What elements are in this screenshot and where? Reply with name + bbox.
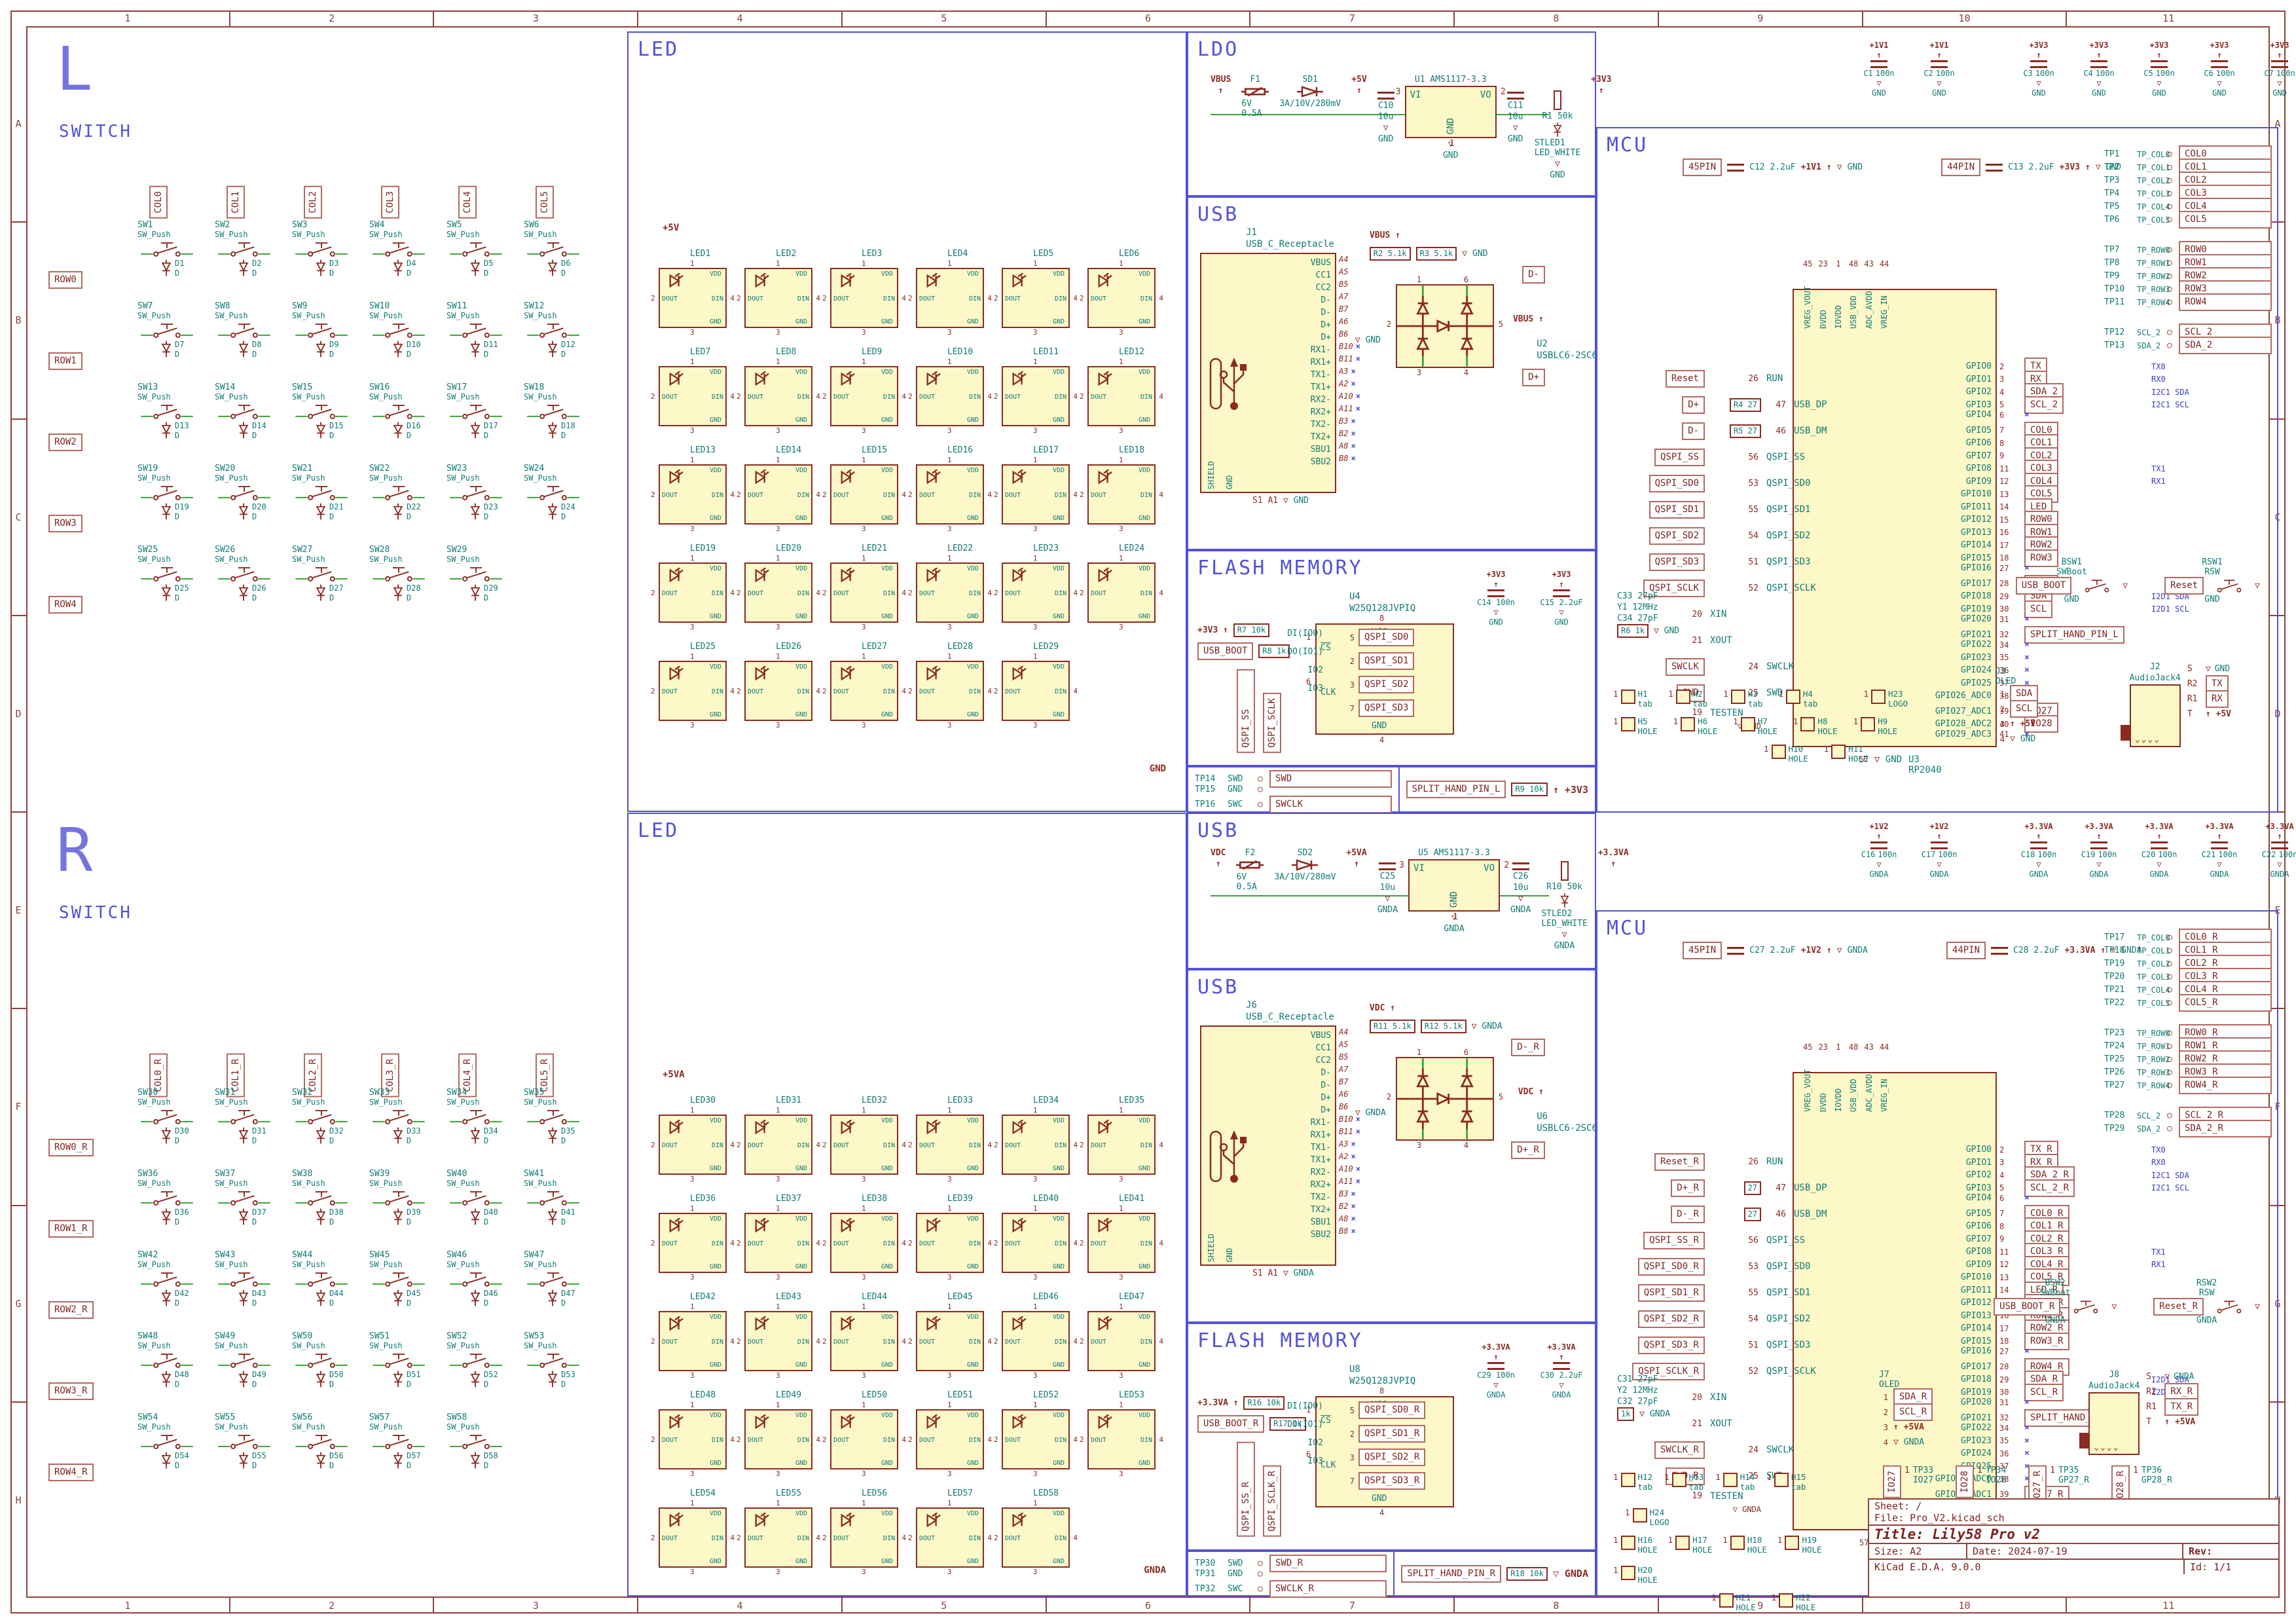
- diode-value: D: [561, 1299, 566, 1308]
- switch-icon: [524, 1190, 583, 1207]
- net-label: +3V3: [1552, 570, 1571, 579]
- pad-icon: [1800, 717, 1815, 731]
- diode-icon: [161, 583, 172, 602]
- capacitor-icon: [1931, 60, 1948, 68]
- rgb-led-icon: [1008, 1414, 1029, 1430]
- no-connect-icon: ×: [1356, 404, 1360, 413]
- mounting-hole: 1H1tab: [1613, 689, 1652, 709]
- diode-icon: [161, 421, 172, 439]
- led-cell: LED7 1 2 3 4 VDD DOUT DIN GND: [659, 347, 744, 445]
- pin-number: A1: [1267, 496, 1278, 506]
- regulator-body: 321 VIGNDVO: [1408, 859, 1500, 912]
- pin-number: 3: [690, 426, 695, 435]
- pin-number: 1: [1119, 456, 1123, 464]
- schottky-icon: [1296, 86, 1324, 98]
- pin-name: DIN: [797, 295, 809, 303]
- row-net-labels: ROW0_RROW1_RROW2_RROW3_RROW4_R: [48, 1139, 94, 1545]
- led-ref: LED52: [1033, 1390, 1087, 1400]
- mcu-pin-right: GPIO6 8 COL1: [1899, 434, 2222, 447]
- switch-ref: SW16: [369, 382, 446, 392]
- switch-icon: [446, 1109, 505, 1126]
- diode-ref: D23: [484, 502, 498, 511]
- diode-icon: [238, 340, 249, 358]
- led-ref: LED17: [1033, 445, 1087, 455]
- pin-name: DIN: [712, 688, 723, 695]
- mounting-hole: 1H9HOLE: [1853, 716, 1898, 736]
- pin-name: GPIO14: [1899, 540, 1997, 550]
- pin-number: 4: [1159, 294, 1163, 303]
- net-label: ROW0: [48, 271, 82, 289]
- switch-cell: SW51 SW_Push D51D: [369, 1331, 446, 1412]
- mcu-pin-left: QSPI_SD2 54 QSPI_SD2: [1607, 523, 1899, 549]
- diode-icon: [393, 259, 403, 277]
- switch-ref: SW32: [292, 1088, 369, 1098]
- diode-ref: D49: [252, 1370, 266, 1379]
- led-symbol: 12 34 VDDDOUT DINGND: [916, 1311, 984, 1371]
- gnd-label: GND: [1489, 618, 1503, 627]
- diode-icon: [238, 1208, 249, 1226]
- diode-value: D: [175, 1136, 179, 1145]
- pin-name: GPIO26_ADC0: [1899, 691, 1997, 701]
- diode-icon: [316, 340, 326, 358]
- switch-cell: SW56 SW_Push D56D: [292, 1412, 369, 1494]
- diode-value: D: [561, 1136, 566, 1145]
- led-symbol: 12 34 VDDDOUT DINGND: [1002, 1213, 1070, 1273]
- regulator-body: 3 2 1 VI GND VO: [1405, 86, 1497, 138]
- led-cell: LED40 12 34 VDDDOUT DINGND: [1002, 1194, 1087, 1292]
- pin-number: 13: [1997, 490, 2024, 499]
- rgb-led-icon: [837, 1316, 858, 1332]
- switch-icon: [137, 1433, 196, 1450]
- switch-ref: SW44: [292, 1250, 369, 1260]
- pin-number: 1: [1778, 689, 1783, 699]
- pin-number: 1: [947, 652, 952, 661]
- gnd-label: GND: [2215, 664, 2230, 674]
- hier-label: Reset: [2164, 577, 2204, 595]
- switch-cell: SW28 SW_Push D28D: [369, 545, 446, 626]
- diode-value: D: [561, 268, 566, 278]
- no-connect-icon: ×: [2024, 640, 2030, 650]
- rgb-led-icon: [751, 1218, 772, 1234]
- ldo-circuit: VBUS↑ F16V 0.5A SD13A/10V/280mV +5V↑ C10…: [1188, 33, 1595, 180]
- switch-value: SW_Push: [446, 1341, 524, 1351]
- switch-ref: SW22: [369, 464, 446, 473]
- pin-name: DOUT: [833, 394, 849, 401]
- pin-number: 3: [947, 426, 952, 435]
- led-ref: LED31: [776, 1096, 830, 1105]
- led-ref: LED41: [1119, 1194, 1173, 1204]
- pin-name: GND: [1053, 711, 1065, 718]
- switch-ref: SW24: [524, 464, 601, 473]
- pin-number: 2: [737, 294, 741, 303]
- switch-icon: [446, 1190, 505, 1207]
- led-symbol: 12 34 VDDDOUT DINGND: [830, 1311, 898, 1371]
- led-matrix: LED1 1 2 3 4 VDD DOUT DIN GND LED2 1 2 3…: [659, 249, 1173, 740]
- rgb-led-icon: [1008, 273, 1029, 289]
- switch-value: SW_Push: [292, 473, 369, 483]
- diode-ref: D56: [329, 1451, 344, 1460]
- pin-number: 3: [1345, 680, 1355, 690]
- rgb-led-icon: [1008, 470, 1029, 485]
- led-symbol: 1 2 3 4 VDD DOUT DIN GND: [830, 464, 898, 525]
- switch-cell: SW20 SW_Push D20D: [215, 464, 292, 545]
- rgb-led-icon: [665, 1218, 686, 1234]
- switch-ref: SW49: [215, 1331, 292, 1341]
- led-cell: LED54 12 34 VDDDOUT DINGND: [659, 1488, 744, 1587]
- pin-number: 3: [690, 623, 695, 631]
- mounting-hole: 1H8HOLE: [1793, 716, 1838, 736]
- switch-cell: SW52 SW_Push D52D: [446, 1331, 524, 1412]
- pin-number: 34: [1997, 640, 2024, 650]
- pin-number: 2: [1387, 320, 1391, 329]
- net-label: COL0: [149, 186, 168, 219]
- gnd-label: GND: [1550, 170, 1565, 180]
- usb-connector: J6USB_C_Receptacle VBUSCC1CC2D-D-D+D+RX1…: [1200, 999, 1360, 1278]
- grid-ref: 7: [1250, 1598, 1455, 1614]
- switch-cell: SW55 SW_Push D55D: [215, 1412, 292, 1494]
- led-symbol: 1 2 3 4 VDD DOUT DIN GND: [916, 464, 984, 525]
- cap-ref: C11: [1508, 101, 1523, 111]
- diode-ref: D45: [407, 1289, 421, 1298]
- pin-name: VDD: [881, 663, 893, 671]
- led-cell: LED22 1 2 3 4 VDD DOUT DIN GND: [916, 544, 1002, 642]
- pin-name: GPIO0: [1899, 361, 1997, 371]
- pin-number: 48: [1849, 259, 1858, 268]
- led-ref: LED39: [947, 1194, 1002, 1204]
- switch-value: SW_Push: [137, 230, 215, 240]
- section-title: MCU: [1607, 134, 1648, 157]
- grid-refs-left: ABCDEFGH: [10, 26, 26, 1598]
- rgb-led-icon: [922, 470, 943, 485]
- switch-icon: [446, 241, 505, 258]
- led-ref: LED46: [1033, 1292, 1087, 1302]
- diode-value: D: [407, 350, 411, 359]
- led-symbol: 1 2 3 4 VDD DOUT DIN GND: [744, 268, 812, 328]
- tp-ref: TP16: [1195, 800, 1228, 809]
- pin-name: DOUT: [662, 295, 678, 303]
- pin-name: DOUT: [1005, 492, 1021, 499]
- rgb-led-icon: [751, 568, 772, 583]
- switch-icon: [446, 1433, 505, 1450]
- tp-ref: TP1: [2104, 149, 2137, 159]
- switch-cell: SW4 SW_Push D4D: [369, 220, 446, 301]
- pin-name: GPIO3: [1899, 400, 1997, 410]
- pin-name: VDD: [967, 270, 979, 278]
- resistor-value: 50k: [1558, 111, 1573, 121]
- switch-value: SW_Push: [137, 311, 215, 321]
- diode-value: D: [175, 1217, 179, 1227]
- led-ref: STLED1: [1535, 138, 1565, 148]
- pin-name: GND: [881, 318, 893, 325]
- signal-note: RX1: [2151, 477, 2221, 486]
- switch-cell: SW5 SW_Push D5D: [446, 220, 524, 301]
- led-cell: LED44 12 34 VDDDOUT DINGND: [830, 1292, 916, 1390]
- diode-ref: D13: [175, 421, 189, 430]
- pin-number: 2: [908, 294, 913, 303]
- switch-icon: [292, 241, 351, 258]
- switch-icon: [292, 1190, 351, 1207]
- pin-number: 3: [1033, 525, 1038, 533]
- diode-icon: [238, 1126, 249, 1145]
- led-cell: LED26 1 2 3 4 VDD DOUT DIN GND: [744, 642, 830, 740]
- grid-refs-top: 1234567891011: [26, 10, 2270, 26]
- diode-ref: D14: [252, 421, 266, 430]
- pin-name: GPIO11: [1899, 502, 1997, 512]
- hier-label: QSPI_SD1: [1649, 501, 1705, 519]
- rgb-led-icon: [665, 371, 686, 387]
- pin-number: 4: [902, 392, 906, 401]
- diode-ref: D17: [484, 421, 498, 430]
- pin-name: DIN: [797, 492, 809, 499]
- pin-number: 14: [1997, 502, 2024, 511]
- pin-name: GND: [710, 711, 721, 718]
- switch-cell: SW27 SW_Push D27D: [292, 545, 369, 626]
- pin-name: XOUT: [1705, 635, 1761, 646]
- pin-number: 3: [1033, 721, 1038, 729]
- switch-cell: SW17 SW_Push D17D: [446, 382, 524, 464]
- switch-cell: SW7 SW_Push D7D: [137, 301, 215, 382]
- pin-number: 5: [1499, 320, 1503, 329]
- usb-section-left: USB J1USB_C_Receptacle VBUSCC1CC2D-D-D+D…: [1187, 196, 1596, 550]
- hier-label: D-: [1682, 422, 1705, 440]
- pin-name: VDD: [1053, 270, 1065, 278]
- gnd-label: GND: [1366, 335, 1381, 345]
- pin-name: DIN: [1055, 492, 1066, 499]
- tp-name: TP_ROW2: [2137, 272, 2167, 281]
- switch-icon: [446, 403, 505, 420]
- pin-name: DOUT: [919, 492, 935, 499]
- diode-icon: [161, 1208, 172, 1226]
- switch-value: SW_Push: [369, 555, 446, 564]
- pin-name: VDD: [710, 369, 721, 376]
- grid-ref: 7: [1250, 10, 1455, 26]
- rgb-led-icon: [665, 1316, 686, 1332]
- hier-label: RX: [2206, 690, 2229, 708]
- grid-ref: 5: [843, 10, 1047, 26]
- pin-number: A2: [1339, 379, 1348, 388]
- led-symbol: 1 2 3 4 VDD DOUT DIN GND: [744, 661, 812, 721]
- diode-value: D: [175, 1380, 179, 1389]
- hier-label: COL5: [2179, 211, 2272, 229]
- rgb-led-icon: [1094, 568, 1115, 583]
- diode-ref: D5: [484, 259, 493, 268]
- pin-name: QSPI_SCLK: [1761, 583, 1789, 593]
- switch-cell: SW34 SW_Push D34D: [446, 1088, 524, 1169]
- pin-name: DIN: [969, 492, 981, 499]
- switch-ref: SW40: [446, 1169, 524, 1179]
- diode-icon: [470, 1370, 481, 1388]
- led-cell: LED50 12 34 VDDDOUT DINGND: [830, 1390, 916, 1488]
- testpoint-strip-right: TP30SWD○SWD_RTP31GND○TP32SWC○SWCLK_R SPL…: [1187, 1551, 1596, 1596]
- pin-name: DIN: [1055, 295, 1066, 303]
- pin-name: GND: [795, 515, 807, 522]
- pin-number: 1: [690, 554, 695, 563]
- diode-icon: [547, 502, 558, 521]
- led-cell: LED5 1 2 3 4 VDD DOUT DIN GND: [1002, 249, 1087, 347]
- no-connect-icon: ×: [1356, 392, 1360, 401]
- pin-name: DOUT: [1005, 394, 1021, 401]
- gnd-label: GND: [2152, 88, 2166, 98]
- diode-icon: [547, 1289, 558, 1307]
- led-symbol: 12 34 VDDDOUT DINGND: [744, 1507, 812, 1568]
- switch-ref: SW20: [215, 464, 292, 473]
- switch-icon: [137, 566, 196, 583]
- net-label: ROW1_R: [48, 1220, 94, 1238]
- diode-icon: [238, 421, 249, 439]
- schematic-title: Title: Lily58 Pro v2: [1869, 1526, 2278, 1544]
- diode-icon: [161, 1370, 172, 1388]
- tp-ref: TP14: [1195, 774, 1228, 784]
- diode-ref: D19: [175, 502, 189, 511]
- mcu-pin-right: GPIO10 13 COL5: [1899, 485, 2222, 498]
- pin-name: GND: [1139, 318, 1150, 325]
- pin-number: 4: [987, 392, 992, 401]
- gnd-label: GND: [2272, 88, 2287, 98]
- pin-name: VDD: [1139, 467, 1150, 474]
- pin-number: 4: [902, 294, 906, 303]
- rgb-led-icon: [665, 273, 686, 289]
- tp-ref: TP7: [2104, 245, 2137, 255]
- mcu-pin-left: D+ R4 27 47 USB_DP: [1607, 392, 1899, 418]
- pin-number: 4: [730, 490, 735, 499]
- pin-number: B11: [1339, 354, 1353, 363]
- pin-number: 1: [1723, 689, 1728, 699]
- led-ref: LED28: [947, 642, 1002, 652]
- pin-number: 2: [651, 392, 655, 401]
- hier-label: SPLIT_HAND_PIN_L: [1406, 781, 1506, 798]
- pin-name: DOUT: [662, 688, 678, 695]
- pin-number: 2: [737, 392, 741, 401]
- pin-number: 1: [1033, 554, 1038, 563]
- pin-number: 3: [947, 328, 952, 337]
- switch-icon: [369, 322, 428, 339]
- signal-note: TX0: [2151, 362, 2221, 371]
- pin-number: 2: [737, 687, 741, 695]
- rgb-led-icon: [1008, 371, 1029, 387]
- net-label: +1V1: [1801, 162, 1821, 172]
- signal-note: I2C1 SCL: [2151, 400, 2221, 409]
- led-cell: LED36 12 34 VDDDOUT DINGND: [659, 1194, 744, 1292]
- switch-cell: SW13 SW_Push D13D: [137, 382, 215, 464]
- ldo-section-left: LDO VBUS↑ F16V 0.5A SD13A/10V/280mV +5V↑…: [1187, 31, 1596, 196]
- pin-number: 11: [1997, 464, 2024, 473]
- switch-value: SW_Push: [292, 1341, 369, 1351]
- pin-tag: 45PIN: [1683, 158, 1722, 176]
- logo-hole: 1H23LOGO: [1863, 689, 1908, 709]
- date: Date: 2024-07-19: [1967, 1544, 2183, 1559]
- pin-name: GND: [1053, 515, 1065, 522]
- cap-value: 100n: [1936, 69, 1955, 78]
- pin-name: DOUT: [748, 688, 763, 695]
- diode-ref: D25: [175, 583, 189, 593]
- button-value: SWBoot: [2056, 567, 2087, 577]
- pin-name: CC2: [1316, 283, 1331, 295]
- led-ref: LED36: [690, 1194, 744, 1204]
- pin-number: 4: [1073, 392, 1078, 401]
- diode-icon: [316, 1289, 326, 1307]
- fuse-icon: [1241, 86, 1269, 98]
- pin-name: GND: [1446, 118, 1456, 134]
- led-cell: LED33 12 34 VDDDOUT DINGND: [916, 1096, 1002, 1194]
- pin-number: 2: [1080, 490, 1084, 499]
- diode-icon: [470, 583, 481, 602]
- pin-name: DOUT: [919, 295, 935, 303]
- pin-number: 2: [994, 589, 998, 597]
- diode-value: D: [561, 431, 566, 440]
- usb-section-right: USB J6USB_C_Receptacle VBUSCC1CC2D-D-D+D…: [1187, 969, 1596, 1323]
- pin-number: 1: [776, 456, 780, 464]
- pin-number: 3: [776, 721, 780, 729]
- pin-number: 1: [1613, 689, 1618, 699]
- mcu-section-right: MCU 45PINC27 2.2uF+1V2↑▽GNDA44PINC28 2.2…: [1596, 910, 2278, 1596]
- switch-ref: SW30: [137, 1088, 215, 1098]
- hier-label: USB_BOOT: [2016, 577, 2071, 595]
- no-connect-icon: ×: [1351, 454, 1355, 463]
- testpad-icon: ○: [1258, 784, 1269, 794]
- pin-name: GPIO25: [1899, 678, 1997, 688]
- led-cell: LED46 12 34 VDDDOUT DINGND: [1002, 1292, 1087, 1390]
- signal-note: RX0: [2151, 375, 2221, 384]
- usb-connector-body: VBUSCC1CC2D-D-D+D+RX1-RX1+TX1-TX1+RX2-RX…: [1200, 253, 1336, 493]
- pin-name: DIN: [1055, 688, 1066, 695]
- diode-icon: [161, 502, 172, 521]
- led-symbol: 1 2 3 4 VDD DOUT DIN GND: [830, 366, 898, 426]
- section-title: LED: [638, 38, 679, 61]
- rgb-led-icon: [751, 666, 772, 682]
- pin-name: DOUT: [662, 590, 678, 597]
- pin-name: GPIO17: [1899, 579, 1997, 589]
- switch-cell: SW19 SW_Push D19D: [137, 464, 215, 545]
- diode-value: D: [252, 1217, 257, 1227]
- mounting-hole: 1H7HOLE: [1733, 716, 1777, 736]
- diode-value: D: [484, 268, 488, 278]
- pin-number: 3: [776, 623, 780, 631]
- cap-value: 100n: [1876, 69, 1895, 78]
- fuse-ref: F1: [1250, 75, 1260, 84]
- switch-icon: [446, 485, 505, 502]
- diode-icon: [547, 1208, 558, 1226]
- switch-ref: SW39: [369, 1169, 446, 1179]
- led-cell: LED12 1 2 3 4 VDD DOUT DIN GND: [1087, 347, 1173, 445]
- pin-name: GPIO24: [1899, 665, 1997, 675]
- no-connect-icon: ×: [1351, 367, 1355, 376]
- diode-ref: D2: [252, 259, 261, 268]
- pin-name: GND: [1139, 416, 1150, 424]
- led-symbol: 12 34 VDDDOUT DINGND: [1002, 1507, 1070, 1568]
- mcu-pin-left: QSPI_SD3 51 QSPI_SD3: [1607, 549, 1899, 575]
- switch-cell: SW11 SW_Push D11D: [446, 301, 524, 382]
- switch-cell: SW58 SW_Push D58D: [446, 1412, 524, 1494]
- pin-number: 12: [1997, 477, 2024, 486]
- diode-ref: D42: [175, 1289, 189, 1298]
- pin-number: 4: [1073, 687, 1078, 695]
- led-symbol: 1 2 3 4 VDD DOUT DIN GND: [916, 661, 984, 721]
- diode-value: D: [484, 1136, 488, 1145]
- switch-ref: SW18: [524, 382, 601, 392]
- switch-icon: [292, 1271, 351, 1288]
- pin-name: DOUT: [1005, 688, 1021, 695]
- pin-number: 8: [1997, 439, 2024, 448]
- led-cell: LED55 12 34 VDDDOUT DINGND: [744, 1488, 830, 1587]
- rgb-led-icon: [837, 568, 858, 583]
- diode-icon: [238, 1451, 249, 1469]
- gnd-label: GND: [1443, 151, 1458, 160]
- switch-icon: [137, 1271, 196, 1288]
- led-ref: LED6: [1119, 249, 1173, 259]
- switch-ref: SW4: [369, 220, 446, 230]
- pin-number: 2: [994, 294, 998, 303]
- pin-number: 4: [730, 687, 735, 695]
